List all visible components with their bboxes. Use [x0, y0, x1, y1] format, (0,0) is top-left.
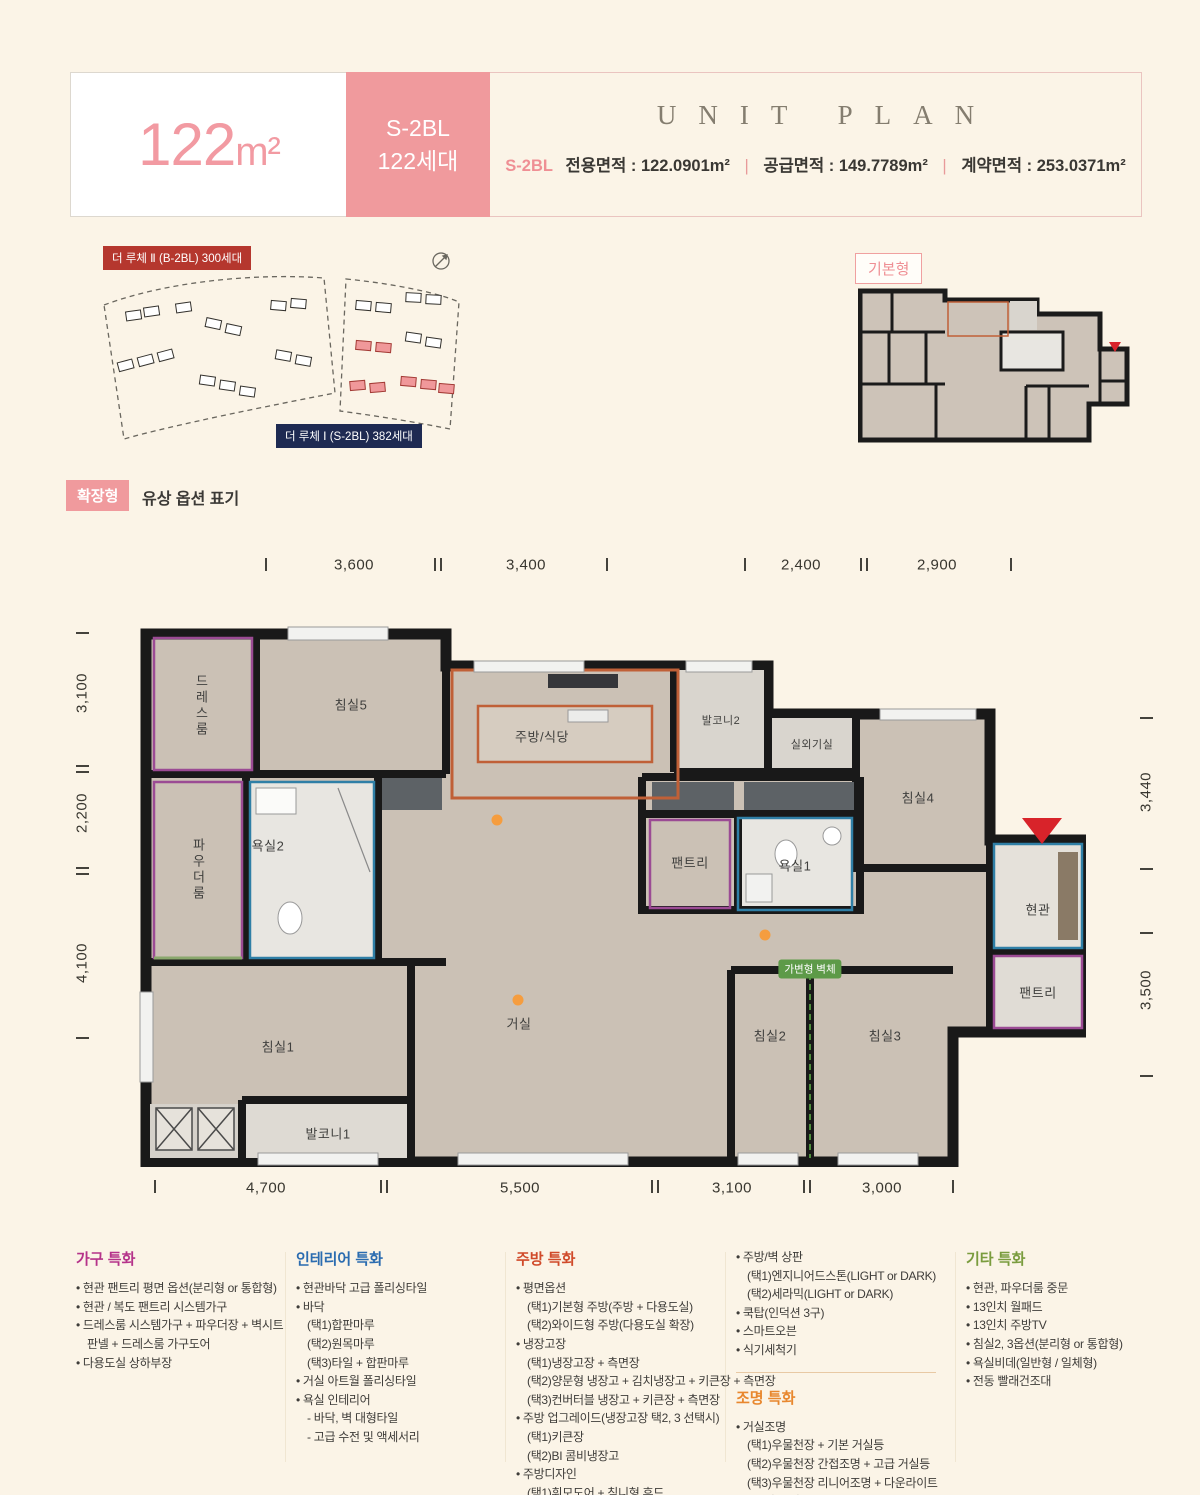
dim-bottom: 3,100 [712, 1180, 752, 1197]
room-label-bath2: 욕실2 [252, 836, 285, 855]
room-label-kitchen: 주방/식당 [515, 727, 569, 746]
room-label-powder-room: 파우더룸 [189, 838, 208, 902]
dimension-tick [1140, 717, 1153, 719]
dimension-tick [434, 558, 436, 571]
room-label-dressroom: 드레스룸 [192, 674, 211, 738]
room-label-bedroom1: 침실1 [262, 1037, 295, 1056]
feature-item: (택3)타일 + 합판마루 [296, 1354, 508, 1373]
room-label-bedroom2: 침실2 [754, 1026, 787, 1045]
feature-item: - 고급 수전 및 액세서리 [296, 1428, 508, 1447]
feature-item: (택2)세라믹(LIGHT or DARK) [736, 1285, 948, 1304]
dim-right: 3,500 [1138, 970, 1155, 1010]
room-label-pantry2: 팬트리 [1019, 983, 1056, 1002]
feature-item: (택1)합판마루 [296, 1316, 508, 1335]
feature-column-etc: 기타 특화• 현관, 파우더룸 중문• 13인치 월패드• 13인치 주방TV•… [966, 1248, 1178, 1391]
feature-item: • 평면옵션 [516, 1279, 728, 1298]
floor-plan [138, 622, 1086, 1167]
dim-top: 3,600 [334, 557, 374, 574]
dim-left: 2,200 [74, 793, 91, 833]
feature-section-title: 가구 특화 [76, 1248, 288, 1271]
dimension-tick [380, 1180, 382, 1193]
expanded-type-badge: 확장형 [66, 480, 129, 511]
room-label-balcony2: 발코니2 [702, 712, 740, 728]
feature-item: (택1)휘모도어 + 침니형 후드 [516, 1484, 728, 1495]
feature-item: (택1)우물천장 + 기본 거실등 [736, 1436, 948, 1455]
dimension-tick [1010, 558, 1012, 571]
area-value: 253.0371m² [1037, 157, 1126, 175]
dim-top: 2,900 [917, 557, 957, 574]
feature-section-title: 조명 특화 [736, 1387, 948, 1410]
header: 122m² S-2BL 122세대 UNIT PLAN S-2BL 전용면적 :… [70, 72, 1142, 217]
dimension-tick [440, 558, 442, 571]
closet [744, 782, 854, 810]
kitchen-appliance [548, 674, 618, 688]
site-label-block1: 더 루체 Ⅰ (S-2BL) 382세대 [276, 424, 422, 448]
area-value: 122.0901m² [641, 157, 730, 175]
dimension-tick [803, 1180, 805, 1193]
basic-type-tag: 기본형 [855, 253, 922, 284]
area-value: 149.7789m² [839, 157, 928, 175]
feature-item: (택1)키큰장 [516, 1428, 728, 1447]
area-info: S-2BL 전용면적 : 122.0901m² | 공급면적 : 149.778… [490, 152, 1141, 176]
dimension-tick [76, 1037, 89, 1039]
feature-item: • 냉장고장 [516, 1335, 728, 1354]
kitchen-sink [568, 710, 608, 722]
dimension-tick [952, 1180, 954, 1193]
feature-column-furniture: 가구 특화• 현관 팬트리 평면 옵션(분리형 or 통합형)• 현관 / 복도… [76, 1248, 288, 1372]
feature-item: • 현관바닥 고급 폴리싱타일 [296, 1279, 508, 1298]
area-label: 공급면적 [763, 157, 824, 175]
dim-left: 3,100 [74, 673, 91, 713]
dimension-tick [1140, 1075, 1153, 1077]
room-label-living: 거실 [507, 1014, 532, 1033]
dim-bottom: 4,700 [246, 1180, 286, 1197]
dimension-tick [76, 632, 89, 634]
feature-column-interior: 인테리어 특화• 현관바닥 고급 폴리싱타일• 바닥(택1)합판마루(택2)원목… [296, 1248, 508, 1447]
feature-section-title: 인테리어 특화 [296, 1248, 508, 1271]
feature-item: (택2)양문형 냉장고 + 김치냉장고 + 키큰장 + 측면장 [516, 1372, 728, 1391]
header-right: UNIT PLAN S-2BL 전용면적 : 122.0901m² | 공급면적… [490, 73, 1141, 216]
site-label-block2: 더 루체 Ⅱ (B-2BL) 300세대 [103, 246, 251, 270]
block-badge: S-2BL 122세대 [346, 72, 490, 217]
block-badge-line2: 122세대 [378, 145, 459, 177]
feature-item: • 드레스룸 시스템가구 + 파우더장 + 벽시트판넬 + 드레스룸 가구도어 [76, 1316, 288, 1353]
dimension-tick [866, 558, 868, 571]
room-label-outdoor-unit: 실외기실 [791, 736, 833, 752]
feature-section-title: 주방 특화 [516, 1248, 728, 1271]
room-label-bedroom5: 침실5 [335, 695, 368, 714]
dimension-tick [809, 1180, 811, 1193]
unit-plan-page: 122m² S-2BL 122세대 UNIT PLAN S-2BL 전용면적 :… [0, 0, 1200, 1495]
compass-icon [433, 253, 449, 269]
buildings-block1 [350, 293, 455, 394]
feature-item: • 주방 업그레이드(냉장고장 택2, 3 선택시) [516, 1409, 728, 1428]
dimension-tick [744, 558, 746, 571]
paid-option-note: 유상 옵션 표기 [142, 485, 239, 509]
dimension-tick [76, 765, 89, 767]
feature-item: • 현관 팬트리 평면 옵션(분리형 or 통합형) [76, 1279, 288, 1298]
dimension-tick [154, 1180, 156, 1193]
dimension-tick [76, 867, 89, 869]
feature-item: • 쿡탑(인덕션 3구) [736, 1304, 948, 1323]
room-label-balcony1: 발코니1 [305, 1124, 350, 1143]
feature-item: • 침실2, 3옵션(분리형 or 통합형) [966, 1335, 1178, 1354]
room-label-entry: 현관 [1026, 900, 1051, 919]
feature-item: (택1)냉장고장 + 측면장 [516, 1354, 728, 1373]
room-label-pantry: 팬트리 [671, 853, 708, 872]
section-divider [736, 1372, 936, 1373]
room-label-bedroom4: 침실4 [902, 788, 935, 807]
feature-column-kitchen: 주방 특화• 평면옵션(택1)기본형 주방(주방 + 다용도실)(택2)와이드형… [516, 1248, 728, 1495]
dimension-tick [606, 558, 608, 571]
feature-item: • 주방/벽 상판 [736, 1248, 948, 1267]
area-label: 전용면적 [566, 157, 627, 175]
feature-item: (택2)BI 콤비냉장고 [516, 1447, 728, 1466]
feature-item: • 다용도실 상하부장 [76, 1354, 288, 1373]
divider: | [942, 157, 946, 175]
dimension-tick [1140, 868, 1153, 870]
dimension-tick [386, 1180, 388, 1193]
dimension-tick [76, 771, 89, 773]
buildings-block2 [117, 298, 311, 397]
closet [652, 782, 734, 810]
feature-item: (택1)기본형 주방(주방 + 다용도실) [516, 1298, 728, 1317]
unit-size: 122m² [138, 110, 280, 179]
feature-item: (택3)컨버터블 냉장고 + 키큰장 + 측면장 [516, 1391, 728, 1410]
feature-item: (택2)원목마루 [296, 1335, 508, 1354]
divider: | [745, 157, 749, 175]
feature-item: • 욕실비데(일반형 / 일체형) [966, 1354, 1178, 1373]
unit-plan-title: UNIT PLAN [490, 100, 1141, 131]
dimension-tick [657, 1180, 659, 1193]
basic-type-mini-plan [858, 288, 1130, 444]
feature-item: (택3)우물천장 리니어조명 + 다운라이트 [736, 1474, 948, 1493]
dim-top: 2,400 [781, 557, 821, 574]
feature-item: (택2)와이드형 주방(다용도실 확장) [516, 1316, 728, 1335]
feature-item: • 거실 아트월 폴리싱타일 [296, 1372, 508, 1391]
dimension-tick [265, 558, 267, 571]
movable-wall-badge: 가변형 벽체 [778, 960, 841, 979]
feature-item: • 13인치 월패드 [966, 1298, 1178, 1317]
size-box: 122m² [70, 72, 348, 217]
feature-item: - 바닥, 벽 대형타일 [296, 1409, 508, 1428]
block-code: S-2BL [505, 157, 553, 175]
closet [382, 778, 442, 810]
feature-item: • 스마트오븐 [736, 1322, 948, 1341]
feature-item: • 전동 빨래건조대 [966, 1372, 1178, 1391]
dim-bottom: 5,500 [500, 1180, 540, 1197]
feature-item: • 거실조명 [736, 1418, 948, 1437]
feature-item: • 주방디자인 [516, 1465, 728, 1484]
feature-item: • 바닥 [296, 1298, 508, 1317]
dimension-tick [860, 558, 862, 571]
shoe-cabinet [1058, 852, 1078, 940]
dimension-tick [1140, 932, 1153, 934]
dim-top: 3,400 [506, 557, 546, 574]
unit-size-unit: m² [235, 130, 280, 174]
dimension-tick [651, 1180, 653, 1193]
feature-item: • 현관 / 복도 팬트리 시스템가구 [76, 1298, 288, 1317]
dim-right: 3,440 [1138, 772, 1155, 812]
dimension-tick [76, 873, 89, 875]
dim-left: 4,100 [74, 943, 91, 983]
feature-item: (택2)우물천장 간접조명 + 고급 거실등 [736, 1455, 948, 1474]
feature-item: • 현관, 파우더룸 중문 [966, 1279, 1178, 1298]
block-badge-line1: S-2BL [386, 112, 450, 144]
room-label-bath1: 욕실1 [779, 856, 812, 875]
area-label: 계약면적 [961, 157, 1022, 175]
unit-size-number: 122 [138, 111, 235, 178]
feature-item: • 13인치 주방TV [966, 1316, 1178, 1335]
feature-item: • 욕실 인테리어 [296, 1391, 508, 1410]
room-label-bedroom3: 침실3 [869, 1026, 902, 1045]
feature-section-title: 기타 특화 [966, 1248, 1178, 1271]
feature-item: (택1)엔지니어드스톤(LIGHT or DARK) [736, 1267, 948, 1286]
feature-column-kitchen2-lighting: • 주방/벽 상판(택1)엔지니어드스톤(LIGHT or DARK)(택2)세… [736, 1248, 948, 1495]
dim-bottom: 3,000 [862, 1180, 902, 1197]
feature-item: • 식기세척기 [736, 1341, 948, 1360]
